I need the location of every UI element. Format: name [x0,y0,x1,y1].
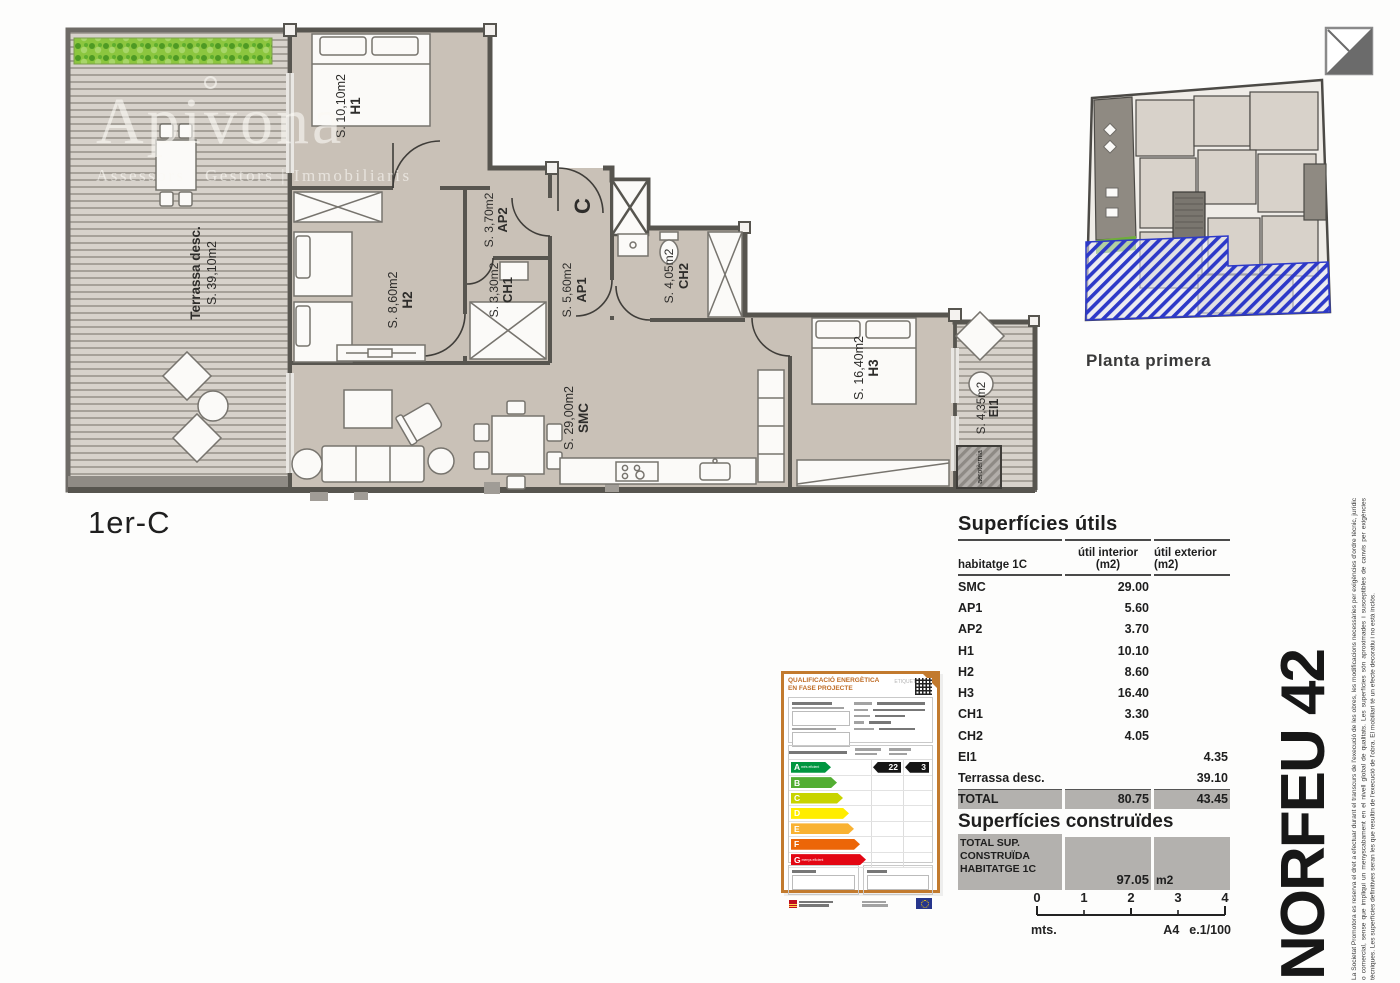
svg-text:S. 8,60m2: S. 8,60m2 [386,271,400,328]
consumption-value: 22 [873,762,901,773]
table-row: SMC29.00 [958,576,1230,597]
energy-form-section [788,697,933,743]
rating-row-b: B [789,776,932,791]
scale-unit: mts. [1031,923,1057,937]
built-unit: m2 [1154,837,1230,890]
table-row: AP15.60 [958,597,1230,618]
project-brand: NORFEU 42 [1268,608,1352,980]
closet-h2 [294,192,382,222]
svg-text:S. 29,00m2: S. 29,00m2 [562,386,576,450]
energy-title: QUALIFICACIÓ ENERGÈTICAEN FASE PROJECTE [788,677,879,693]
table-row: H28.60 [958,661,1230,682]
rating-row-d: D [789,806,932,821]
svg-text:AP2: AP2 [495,207,510,232]
planter [74,38,272,64]
energy-certificate: QUALIFICACIÓ ENERGÈTICAEN FASE PROJECTE … [781,671,940,893]
svg-text:CH1: CH1 [500,277,515,303]
qr-code [915,678,932,695]
table-row: EI14.35 [958,746,1230,767]
svg-text:S. 3,30m2: S. 3,30m2 [487,262,501,317]
built-value: 97.05 [1065,837,1151,890]
rating-row-g: Gmenys eficient [789,853,932,868]
wardrobe-h3 [797,460,949,486]
sheet-corner-icon [1323,25,1375,77]
scale-ruler [1031,906,1231,918]
svg-text:AP1: AP1 [574,277,589,302]
svg-text:CH2: CH2 [676,263,691,289]
terrace [68,30,290,490]
generalitat-logo [789,900,833,908]
bed-h1 [312,34,430,126]
energy-footer-box-left [788,865,859,895]
svg-text:S. 16,40m2: S. 16,40m2 [852,336,866,400]
eu-flag [916,898,932,909]
col-habitatge: habitatge 1C [958,539,1062,576]
surfaces-title: Superfícies útils [958,513,1230,536]
svg-text:H3: H3 [866,359,881,377]
table-row: Terrassa desc.39.10 [958,768,1230,789]
rating-row-c: C [789,791,932,806]
emissions-value: 3 [905,762,929,773]
rating-row-f: F [789,837,932,852]
scale-ratio: e.1/100 [1189,923,1231,937]
sheet-size: A4 [1163,923,1179,937]
energy-footer-box-right [863,865,934,895]
plan-sheet: Terrassa desc. S. 39,10m2 H1 S. 10,10m2 … [0,0,1400,983]
built-block: TOTAL SUP.CONSTRUÏDAHABITATGE 1C 97.05 m… [958,834,1230,890]
table-row: CH13.30 [958,704,1230,725]
table-row: H110.10 [958,640,1230,661]
svg-text:SMC: SMC [576,403,591,433]
table-row: CH24.05 [958,725,1230,746]
keyplan-stair-core [1173,192,1205,238]
built-title: Superfícies construïdes [958,811,1230,833]
svg-text:S. 39,10m2: S. 39,10m2 [205,241,219,305]
key-plan-label: Planta primera [1086,351,1211,371]
svg-text:S. 3,70m2: S. 3,70m2 [482,192,496,247]
svg-text:S. 4,05m2: S. 4,05m2 [662,248,676,303]
svg-text:S. 5,60m2: S. 5,60m2 [560,262,574,317]
col-util-interior: útil interior(m2) [1065,539,1151,576]
energy-scale: Amés eficient 22 3 B C D E F Gmenys efic… [789,760,932,868]
total-row: TOTAL 80.75 43.45 [958,789,1230,809]
floor-plan: Terrassa desc. S. 39,10m2 H1 S. 10,10m2 … [60,18,1040,508]
svg-text:Terrassa desc.: Terrassa desc. [188,226,203,320]
legal-disclaimer: La Societat Promotora es reserva el dret… [1350,498,1398,980]
scale-ticks: 01 23 4 [1031,890,1231,906]
unit-label: 1er-C [88,505,171,541]
table-row: AP23.70 [958,619,1230,640]
key-plan [1078,70,1350,348]
svg-text:EI1: EI1 [987,399,1001,418]
col-util-exterior: útil exterior(m2) [1154,539,1230,576]
energy-rating-section: Amés eficient 22 3 B C D E F Gmenys efic… [788,745,933,863]
entrance-letter: C [570,198,595,214]
svg-text:H2: H2 [400,291,415,308]
rating-row-e: E [789,822,932,837]
table-row: H316.40 [958,682,1230,703]
rating-row-a: Amés eficient 22 3 [789,760,932,775]
svg-text:S. 10,10m2: S. 10,10m2 [334,74,348,138]
aerotermia-label: aerotèrmia [977,450,984,484]
svg-text:H1: H1 [348,97,363,115]
surfaces-header: habitatge 1C útil interior(m2) útil exte… [958,539,1230,576]
keyplan-terrace [1094,97,1136,240]
built-label: TOTAL SUP.CONSTRUÏDAHABITATGE 1C [958,834,1062,890]
scale-bar: 01 23 4 mts. A4e.1/100 [1031,890,1231,937]
entry-closet [612,180,648,235]
surfaces-table: Superfícies útils habitatge 1C útil inte… [958,513,1230,890]
svg-text:S. 4,35m2: S. 4,35m2 [976,382,988,434]
keyplan-side-balcony [1304,164,1326,220]
